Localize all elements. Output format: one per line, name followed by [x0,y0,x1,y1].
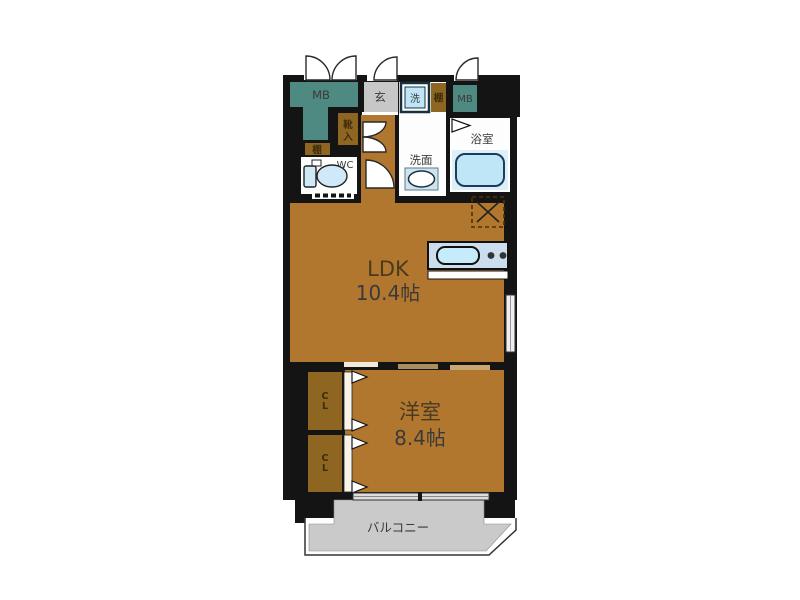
ldk-room: LDK 10.4帖 [290,197,515,362]
meter-box-right: MB [453,85,477,112]
mb-right-door-arc [456,58,478,80]
toilet-tank [304,166,316,187]
toilet-bowl [317,165,347,187]
balcony-window [353,492,489,501]
washroom: 洗 棚 洗面 [399,82,446,196]
bathtub [456,154,504,186]
divider-panel-3 [450,365,490,370]
closet-1-label-l: L [322,401,328,412]
bathroom-label: 浴室 [471,132,494,146]
wall-top-right [477,75,520,117]
meter-box-right-label: MB [457,94,473,105]
toilet-room: WC [301,157,357,199]
entrance-step [362,112,398,115]
kitchen-sink [437,247,479,264]
western-room-label: 洋室 [399,400,441,424]
ldk-size-label: 10.4帖 [356,281,421,305]
entrance-label: 玄 [374,90,386,104]
stove-dot-2 [500,252,507,259]
closet-2-sliding-door [344,435,352,492]
divider-panel-1 [344,362,378,367]
entrance-door-arc [374,57,397,80]
shoe-cabinet-label-1: 靴 [343,119,353,131]
mb-left-door-arc-2 [332,56,356,80]
hallway [361,115,395,203]
washroom-label: 洗面 [410,153,433,167]
divider-panel-2 [398,364,438,369]
stove-dot-1 [488,252,495,259]
floor-plan: バルコニー MB 玄 洗 棚 洗面 MB 浴室 [0,0,800,600]
floor-plan-drawing: バルコニー MB 玄 洗 棚 洗面 MB 浴室 [0,0,800,600]
washer-label: 洗 [410,93,420,105]
kitchen-counter-edge [428,271,508,279]
shelf-top-label: 棚 [434,92,444,104]
closet-1-sliding-door [344,372,352,430]
meter-box-left-label: MB [312,88,330,102]
balcony-window-mullion [418,492,422,501]
western-room: 洋室 8.4帖 [345,370,504,492]
washbasin [409,171,435,187]
shoe-cabinet-label-2: 入 [342,132,353,143]
balcony-label: バルコニー [367,520,429,535]
shelf-left-label: 棚 [312,144,322,156]
bathroom: 浴室 [450,118,510,192]
mb-left-door-arc-1 [306,56,330,80]
western-room-size-label: 8.4帖 [394,426,446,450]
closet-2-label-l: L [322,463,328,474]
ldk-label: LDK [367,257,410,281]
toilet-flush-button [312,160,321,166]
entrance: 玄 [362,82,398,115]
